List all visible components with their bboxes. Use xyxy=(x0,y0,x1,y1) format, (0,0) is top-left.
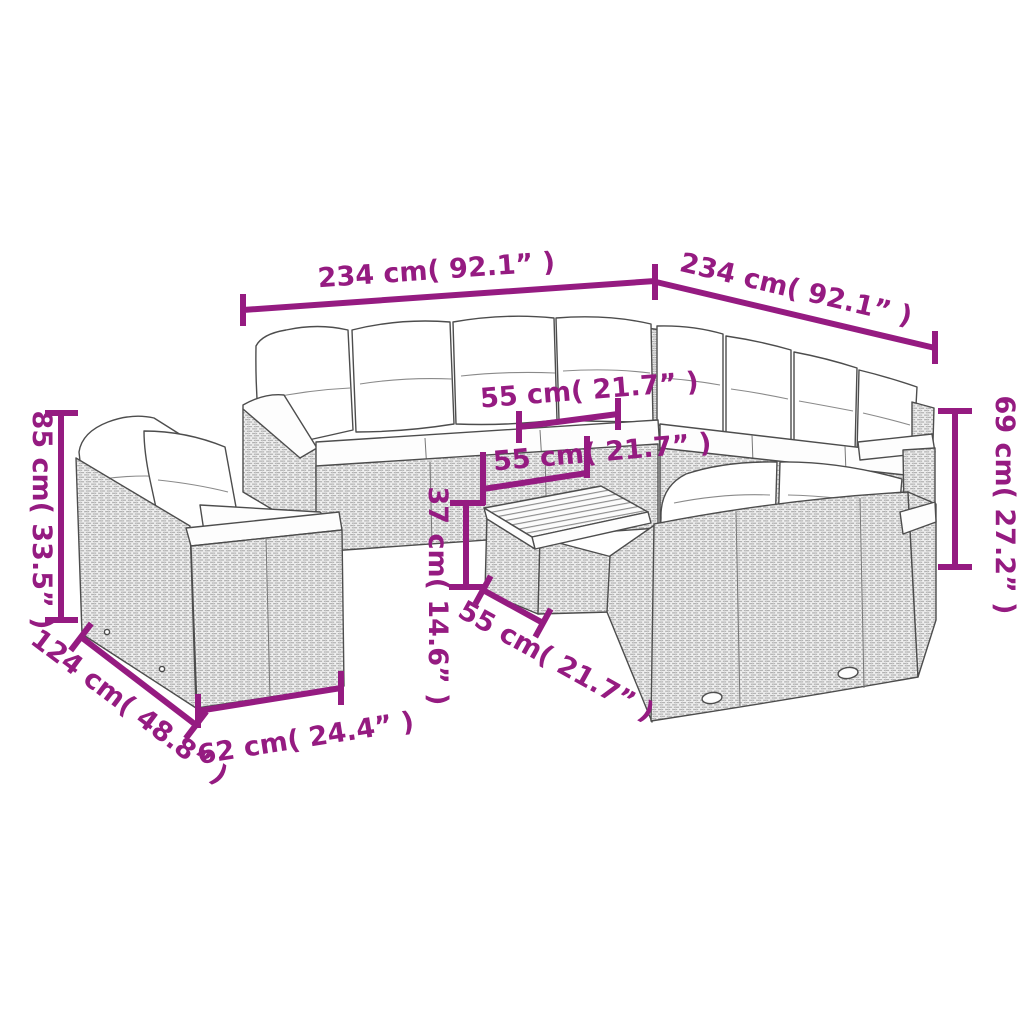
product-dimension-diagram: 234 cm( 92.1” ) 234 cm( 92.1” ) 85 cm( 3… xyxy=(0,0,1024,1024)
dim-armchair-width-label: 62 cm( 24.4” ) xyxy=(195,706,416,771)
dim-top-right-label: 234 cm( 92.1” ) xyxy=(677,247,916,332)
dim-right-height-line xyxy=(938,411,972,567)
front-panel xyxy=(191,530,344,708)
dim-top-left-label: 234 cm( 92.1” ) xyxy=(317,247,556,295)
back-panel xyxy=(651,492,918,721)
diagram-canvas: 234 cm( 92.1” ) 234 cm( 92.1” ) 85 cm( 3… xyxy=(0,0,1024,1024)
rivet-detail xyxy=(159,666,164,671)
dim-table-height-label: 37 cm( 14.6” ) xyxy=(422,487,453,706)
back-cushion xyxy=(352,321,454,432)
dim-left-height-label: 85 cm( 33.5” ) xyxy=(26,411,57,630)
rivet-detail xyxy=(104,629,109,634)
table-base-right xyxy=(538,538,612,614)
dim-right-height-label: 69 cm( 27.2” ) xyxy=(989,396,1020,615)
